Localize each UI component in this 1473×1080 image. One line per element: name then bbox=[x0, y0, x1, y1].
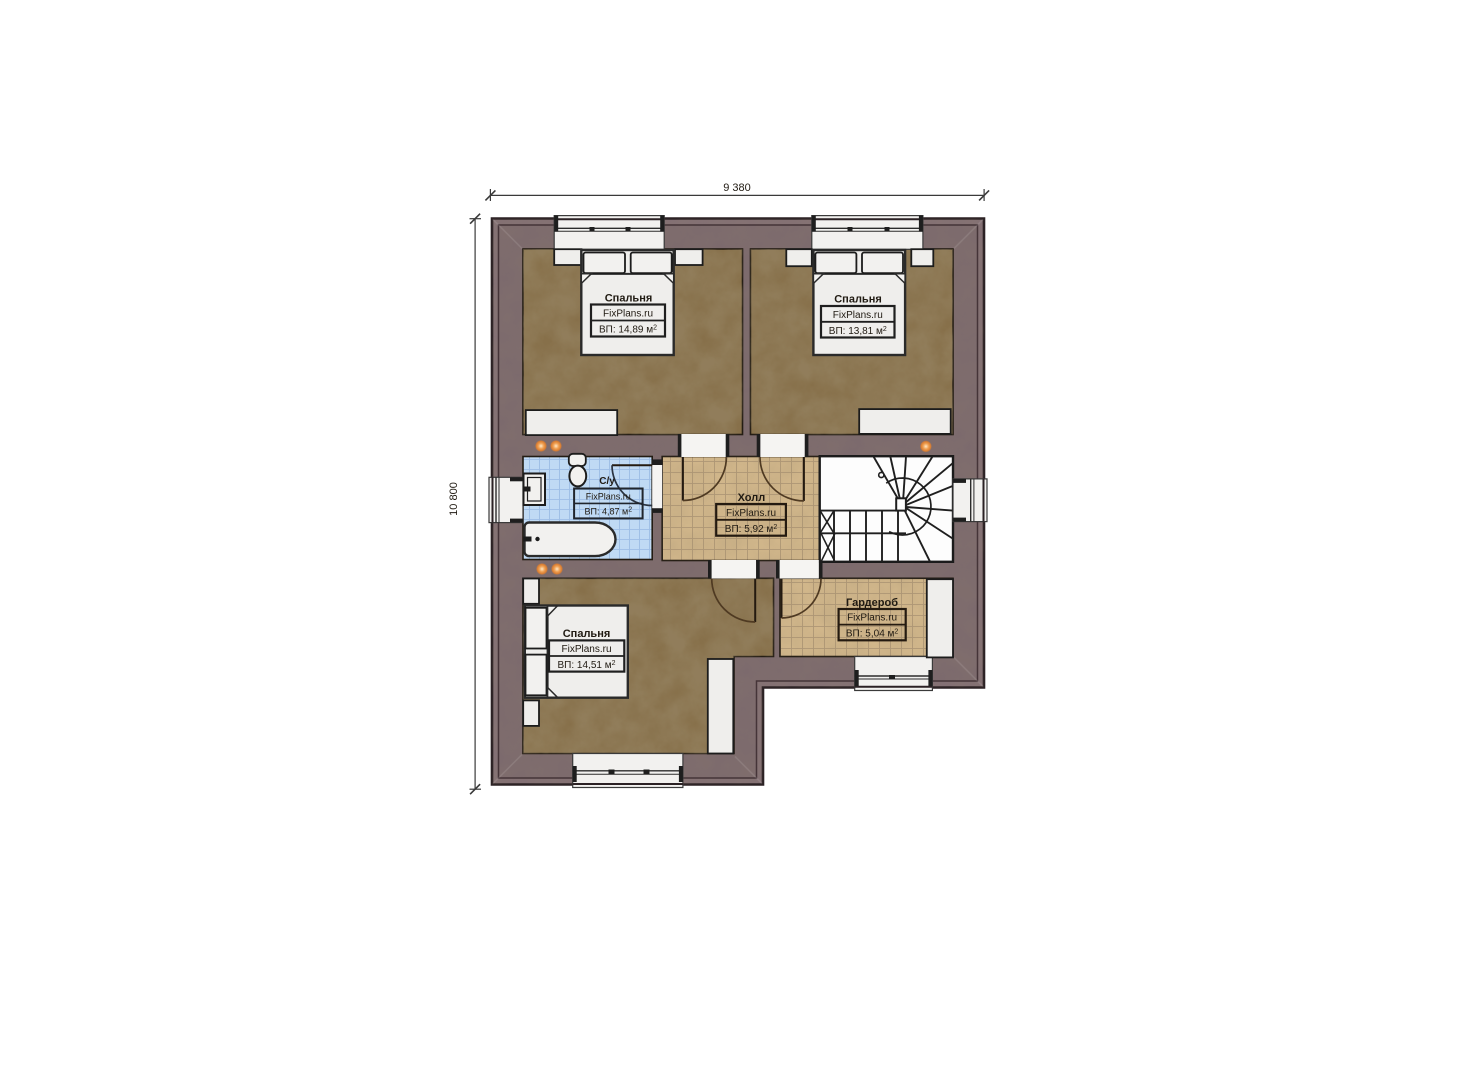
svg-text:FixPlans.ru: FixPlans.ru bbox=[726, 508, 776, 519]
svg-text:FixPlans.ru: FixPlans.ru bbox=[603, 309, 653, 320]
svg-text:ВП: 5,04 м2: ВП: 5,04 м2 bbox=[846, 629, 899, 640]
svg-text:FixPlans.ru: FixPlans.ru bbox=[847, 613, 897, 624]
svg-text:FixPlans.ru: FixPlans.ru bbox=[561, 644, 611, 655]
svg-text:FixPlans.ru: FixPlans.ru bbox=[586, 492, 631, 502]
svg-text:9 380: 9 380 bbox=[723, 182, 751, 194]
svg-text:FixPlans.ru: FixPlans.ru bbox=[833, 310, 883, 321]
svg-text:ВП: 5,92 м2: ВП: 5,92 м2 bbox=[725, 524, 778, 535]
svg-text:ВП: 14,89 м2: ВП: 14,89 м2 bbox=[599, 325, 657, 336]
svg-text:ВП: 4,87 м2: ВП: 4,87 м2 bbox=[585, 507, 633, 517]
svg-text:Спальня: Спальня bbox=[834, 294, 882, 306]
svg-text:Холл: Холл bbox=[738, 492, 766, 504]
svg-text:10 800: 10 800 bbox=[448, 482, 460, 516]
svg-text:Гардероб: Гардероб bbox=[846, 597, 898, 609]
svg-text:С/у: С/у bbox=[599, 476, 615, 487]
svg-text:ВП: 13,81 м2: ВП: 13,81 м2 bbox=[829, 326, 887, 337]
svg-text:ВП: 14,51 м2: ВП: 14,51 м2 bbox=[558, 660, 616, 671]
svg-text:Спальня: Спальня bbox=[563, 628, 611, 640]
svg-text:Спальня: Спальня bbox=[605, 293, 653, 305]
